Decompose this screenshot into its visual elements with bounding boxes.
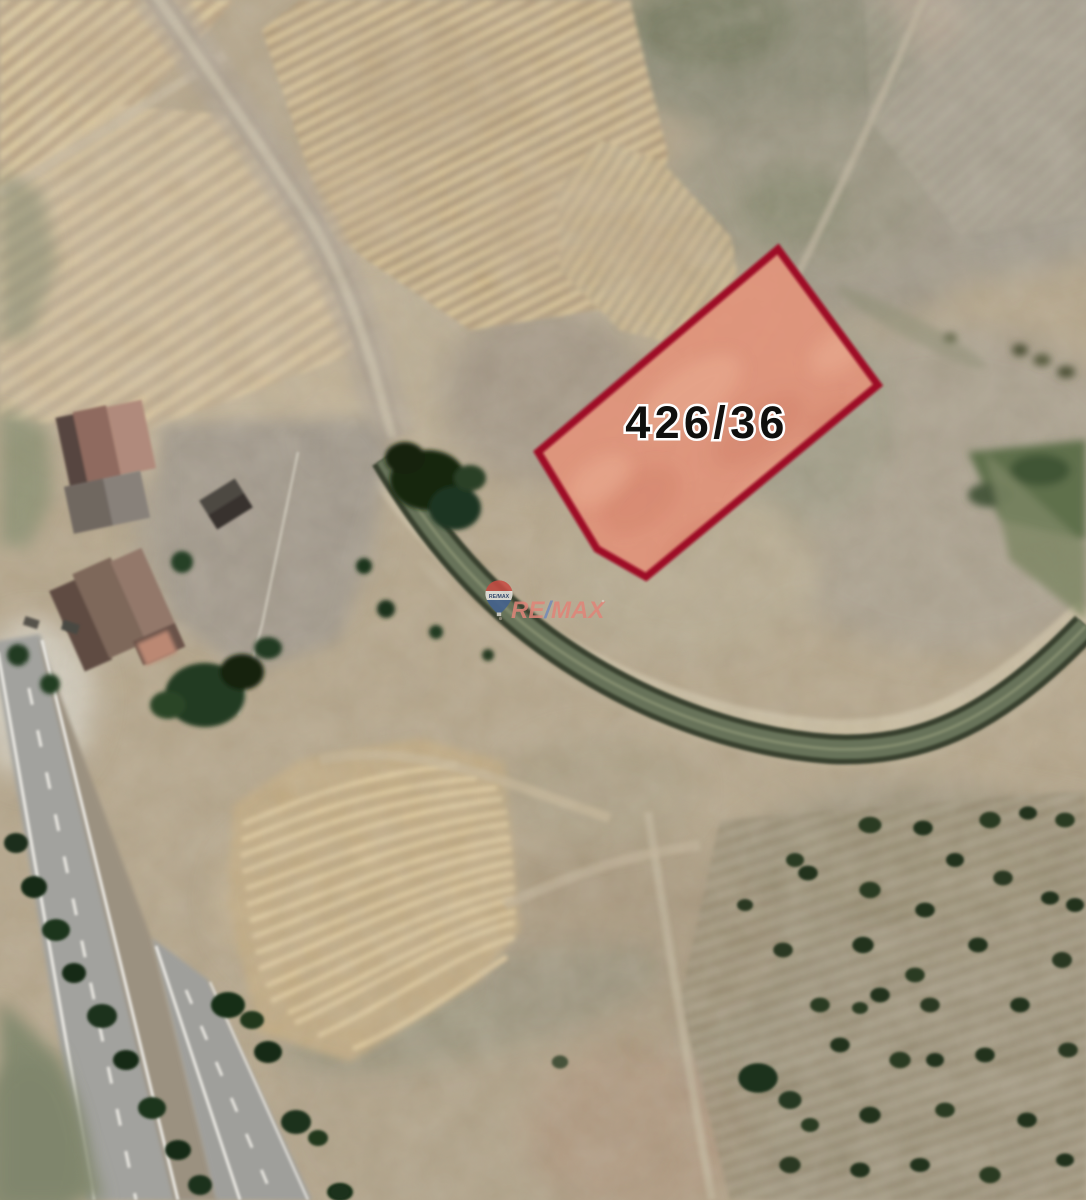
svg-text:RE/MAX: RE/MAX [489, 594, 510, 600]
svg-text:426/36: 426/36 [625, 397, 788, 448]
svg-text:RE/MAX: RE/MAX [511, 597, 606, 624]
